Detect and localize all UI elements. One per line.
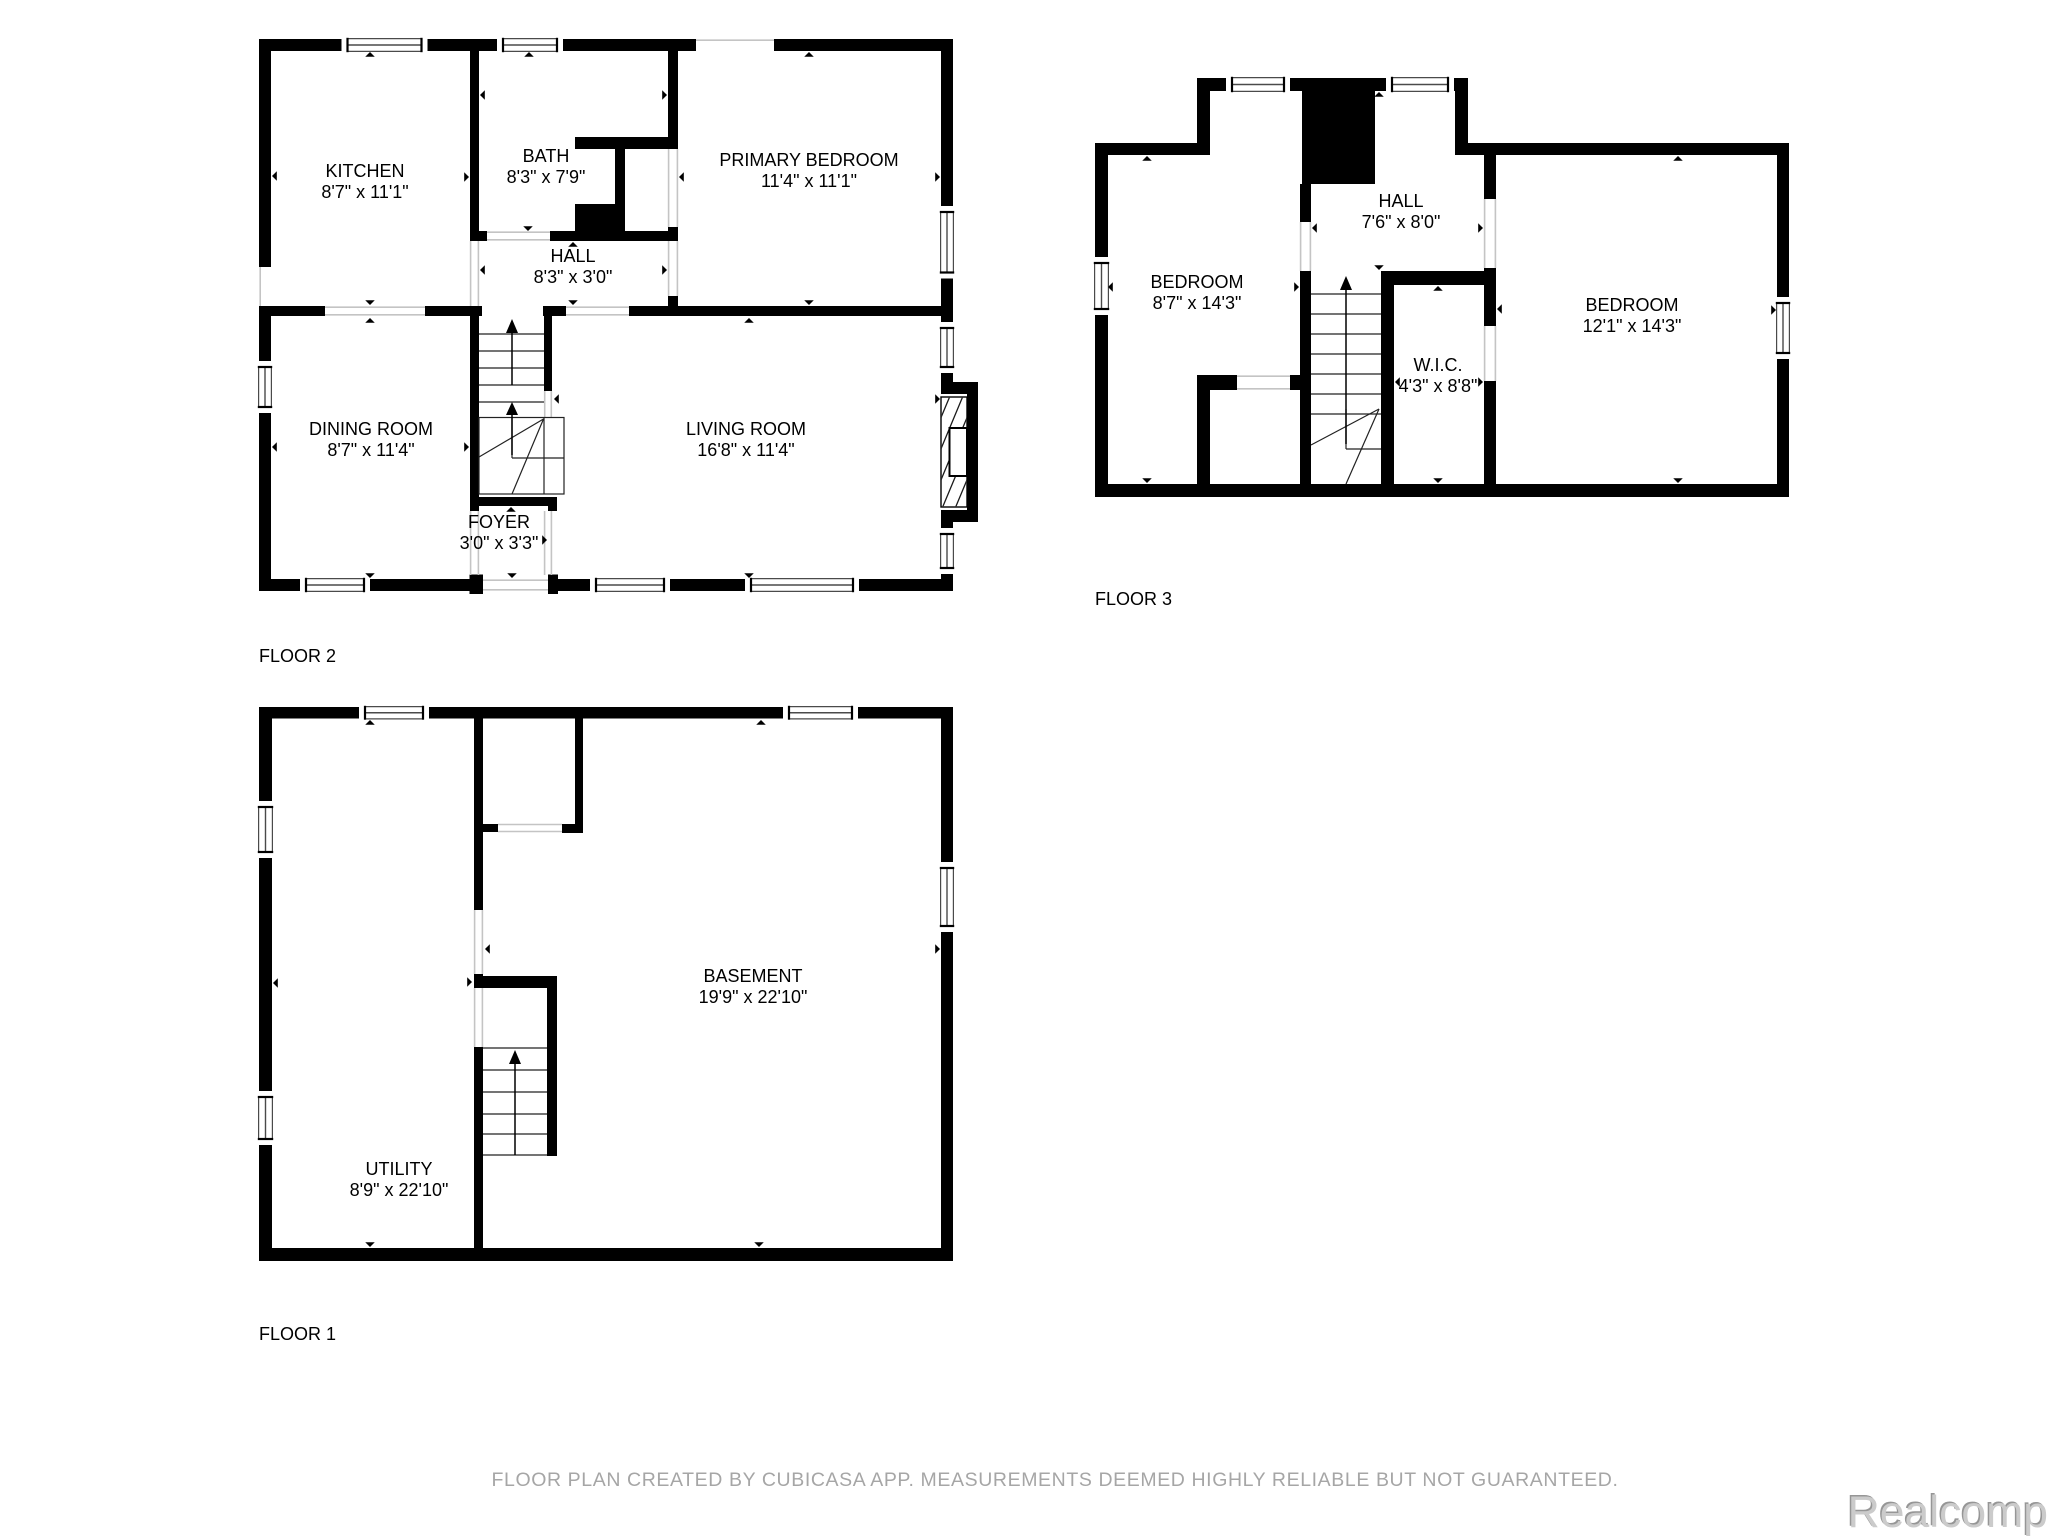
svg-text:BEDROOM: BEDROOM bbox=[1585, 295, 1678, 315]
svg-text:8'7" x 11'4": 8'7" x 11'4" bbox=[327, 440, 414, 460]
svg-text:Realcomp: Realcomp bbox=[1848, 1488, 2048, 1536]
svg-text:8'3" x 7'9": 8'3" x 7'9" bbox=[507, 167, 586, 187]
svg-text:FLOOR 3: FLOOR 3 bbox=[1095, 589, 1172, 609]
svg-text:HALL: HALL bbox=[550, 246, 595, 266]
svg-text:BATH: BATH bbox=[523, 146, 570, 166]
svg-text:FOYER: FOYER bbox=[468, 512, 530, 532]
svg-text:12'1" x 14'3": 12'1" x 14'3" bbox=[1583, 316, 1682, 336]
svg-text:FLOOR 2: FLOOR 2 bbox=[259, 646, 336, 666]
svg-text:8'9" x 22'10": 8'9" x 22'10" bbox=[350, 1180, 449, 1200]
svg-text:DINING ROOM: DINING ROOM bbox=[309, 419, 433, 439]
svg-text:BASEMENT: BASEMENT bbox=[703, 966, 802, 986]
svg-text:8'7" x 14'3": 8'7" x 14'3" bbox=[1153, 293, 1242, 313]
svg-text:FLOOR PLAN CREATED BY CUBICASA: FLOOR PLAN CREATED BY CUBICASA APP. MEAS… bbox=[491, 1469, 1618, 1491]
svg-text:LIVING ROOM: LIVING ROOM bbox=[686, 419, 806, 439]
svg-text:BEDROOM: BEDROOM bbox=[1150, 272, 1243, 292]
svg-text:W.I.C.: W.I.C. bbox=[1414, 355, 1463, 375]
svg-text:8'3" x 3'0": 8'3" x 3'0" bbox=[534, 267, 613, 287]
svg-text:UTILITY: UTILITY bbox=[365, 1159, 432, 1179]
svg-text:19'9" x 22'10": 19'9" x 22'10" bbox=[699, 987, 808, 1007]
svg-text:3'0" x 3'3": 3'0" x 3'3" bbox=[460, 533, 539, 553]
svg-text:FLOOR 1: FLOOR 1 bbox=[259, 1324, 336, 1344]
svg-text:KITCHEN: KITCHEN bbox=[325, 161, 404, 181]
svg-text:8'7" x 11'1": 8'7" x 11'1" bbox=[321, 182, 408, 202]
svg-text:16'8" x 11'4": 16'8" x 11'4" bbox=[697, 440, 794, 460]
svg-text:11'4" x 11'1": 11'4" x 11'1" bbox=[761, 171, 857, 191]
svg-text:4'3" x 8'8": 4'3" x 8'8" bbox=[1399, 376, 1478, 396]
svg-text:7'6" x 8'0": 7'6" x 8'0" bbox=[1362, 212, 1441, 232]
svg-text:HALL: HALL bbox=[1378, 191, 1423, 211]
svg-text:PRIMARY BEDROOM: PRIMARY BEDROOM bbox=[719, 150, 898, 170]
